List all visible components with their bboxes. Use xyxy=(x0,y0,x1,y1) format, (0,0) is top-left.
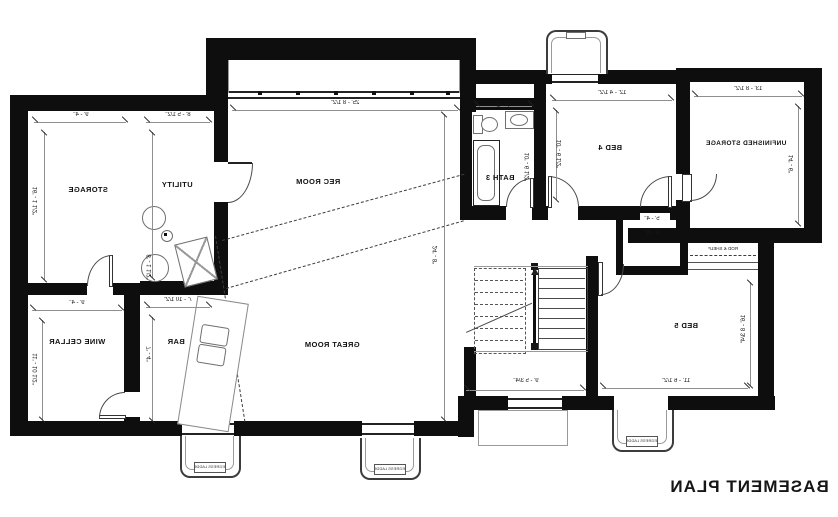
room-label-great-room: GREAT ROOM xyxy=(287,340,377,349)
stair-stringer xyxy=(533,268,536,348)
window-mullion xyxy=(372,91,376,95)
wall-bed4-top xyxy=(476,70,552,84)
closet-shelf-front xyxy=(688,262,758,270)
window-bed4 xyxy=(552,73,598,83)
dim-rec-width: 25' - 8 1/2" xyxy=(290,100,400,106)
dimension-line xyxy=(466,390,584,391)
stair-tread xyxy=(475,340,523,341)
floor-drain-center xyxy=(164,233,167,236)
rod-shelf-label: ROD & SHELF xyxy=(692,246,754,251)
window-jamb xyxy=(228,60,229,93)
dim-wine-height: 11' - 10 1/2" xyxy=(33,337,39,401)
wall-bottom xyxy=(234,421,362,436)
closet-rod-dashed xyxy=(690,255,756,256)
dimension-line xyxy=(602,388,748,389)
wall-utility-rec xyxy=(214,60,228,162)
wall-top-center xyxy=(206,38,476,60)
dim-rec-height: 24' - 8" xyxy=(433,225,439,285)
wall-wine-right xyxy=(124,417,140,436)
wall xyxy=(460,112,472,216)
wall-bed4-storage xyxy=(676,82,690,174)
room-label-rec-room: REC ROOM xyxy=(278,177,358,186)
plan-title: BASEMENT PLAN xyxy=(668,477,830,497)
dimension-line xyxy=(42,320,43,420)
dimension-line xyxy=(32,310,122,311)
window-well-inner xyxy=(551,37,601,73)
dim-storage-width: 9' - 4" xyxy=(46,112,116,118)
dimension-line xyxy=(232,110,458,111)
dim-bed5-height: 16' - 8 3/4" xyxy=(741,297,747,361)
stair-tread xyxy=(539,338,585,339)
wall-wine-right xyxy=(124,295,140,392)
stair-tread xyxy=(539,278,585,279)
window-landing xyxy=(508,398,562,409)
dimension-line xyxy=(444,114,445,420)
stair-tread xyxy=(539,298,585,299)
wall-bath-bed4 xyxy=(534,84,546,212)
door-arc-bed4-closet xyxy=(640,176,671,207)
door-arc-wine-cellar xyxy=(99,392,125,418)
stair-top-line xyxy=(474,266,588,267)
stair-tread xyxy=(475,292,523,293)
wall-storage-bottom xyxy=(10,283,87,295)
basement-floor-plan: EGRESS LADDER EGRESS LADDER EGRESS LADDE… xyxy=(0,0,838,517)
door-arc-storage xyxy=(87,255,112,286)
door-arc-utility xyxy=(228,163,253,203)
wall-top-right xyxy=(676,68,822,82)
door-arc-bed4 xyxy=(548,176,579,207)
stair-up-arrow xyxy=(531,268,539,275)
dimension-line xyxy=(798,106,799,224)
wall-bed5-right xyxy=(758,242,774,410)
room-label-bar: BAR xyxy=(156,337,196,346)
dimension-line xyxy=(552,100,672,101)
window-mullion xyxy=(296,91,300,95)
wall-hall xyxy=(532,206,548,220)
egress-ladder-label: EGRESS LADDER xyxy=(194,462,226,473)
room-label-bed4: BED 4 xyxy=(575,143,645,152)
dimension-line xyxy=(146,307,210,308)
room-label-bath3: BATH 3 xyxy=(475,173,525,182)
dim-bed4-width: 12' - 4 1/2" xyxy=(560,90,664,96)
stair-tread xyxy=(539,318,585,319)
water-tank xyxy=(141,254,169,282)
window-mullion xyxy=(410,91,414,95)
dim-utility-height: 8' - 1 1/2" xyxy=(147,235,153,299)
stair-tread xyxy=(475,304,523,305)
dim-bar-height: 7' - 4" xyxy=(147,322,153,386)
dim-wine-width: 9' - 4" xyxy=(42,300,112,306)
furnace xyxy=(174,237,218,288)
dimension-line xyxy=(44,132,45,280)
dim-storage-height: 16' - 1 1/2" xyxy=(33,169,39,233)
wall-bottom xyxy=(10,421,182,436)
dim-utility-width: 8' - 5 1/2" xyxy=(142,112,214,118)
wall-bed5-bottom xyxy=(668,396,775,410)
dim-closet-a: 5' - 4" xyxy=(630,216,674,222)
window-mullion xyxy=(258,91,262,95)
egress-ladder-label: EGRESS LADDER xyxy=(626,436,658,447)
window-mullion xyxy=(334,91,338,95)
room-label-utility: UTILITY xyxy=(142,180,212,189)
dim-unfinished-width: 13' - 8 1/2" xyxy=(694,86,802,92)
soffit-dashed-line xyxy=(226,220,464,289)
bath-sink xyxy=(510,114,528,126)
bar-sink xyxy=(196,344,227,367)
wall-hall xyxy=(460,206,506,220)
dimension-line xyxy=(750,282,751,386)
wall-closet-bottom xyxy=(622,266,688,275)
dim-stairs-width: 9' - 5 3/4" xyxy=(470,378,582,384)
wall-landing-bottom xyxy=(562,396,588,410)
wall-right-exterior xyxy=(804,68,822,243)
floor-drain xyxy=(161,230,173,242)
dimension-line xyxy=(34,122,126,123)
dim-closet-b: 2' - 8" xyxy=(630,230,674,236)
dimension-line xyxy=(146,122,210,123)
dim-bath-height: 10' - 6 1/2" xyxy=(525,135,531,199)
dim-bar-width: 7' - 10 1/2" xyxy=(142,297,214,303)
bar-counter xyxy=(177,296,249,433)
window-great-room xyxy=(362,423,414,435)
dimension-line xyxy=(694,96,802,97)
wall-bed5-bottom xyxy=(586,396,614,410)
room-label-storage: STORAGE xyxy=(48,185,128,194)
water-heater xyxy=(142,206,166,230)
wall-top-left xyxy=(10,95,208,111)
window-jamb xyxy=(459,60,460,93)
landing-window-well xyxy=(478,410,568,446)
door-arc-unfinished-storage xyxy=(690,174,717,201)
dim-bed5-width: 11' - 6 1/2" xyxy=(616,378,736,384)
wall-step xyxy=(458,396,474,437)
toilet-bowl xyxy=(481,117,498,132)
stair-newel-post xyxy=(531,343,538,350)
window-mullion xyxy=(446,91,450,95)
room-label-unfinished-storage: UNFINISHED STORAGE xyxy=(691,140,801,147)
window-well-step xyxy=(566,32,586,39)
wall-bed4-top xyxy=(598,70,678,84)
wall-bottom xyxy=(414,421,460,436)
stair-tread xyxy=(475,328,523,329)
stair-tread xyxy=(539,288,585,289)
stair-tread xyxy=(475,280,523,281)
wall-storage-bottom xyxy=(113,283,140,295)
door-arc-bed5 xyxy=(601,264,624,295)
room-label-wine-cellar: WINE CELLAR xyxy=(37,337,117,346)
wall-left-exterior xyxy=(10,95,28,436)
dim-bath-width: 7' - 2" xyxy=(474,103,530,109)
stair-tread xyxy=(539,328,585,329)
wall-closet xyxy=(680,234,688,275)
room-label-bed5: BED 5 xyxy=(651,321,721,330)
wall-closet xyxy=(616,206,686,213)
window-rec-room xyxy=(228,91,460,99)
stair-tread xyxy=(539,308,585,309)
egress-ladder-label: EGRESS LADDER xyxy=(374,464,406,475)
dim-bed4-height: 10' - 6 1/2" xyxy=(557,122,563,186)
stair-bottom-line xyxy=(474,351,588,352)
